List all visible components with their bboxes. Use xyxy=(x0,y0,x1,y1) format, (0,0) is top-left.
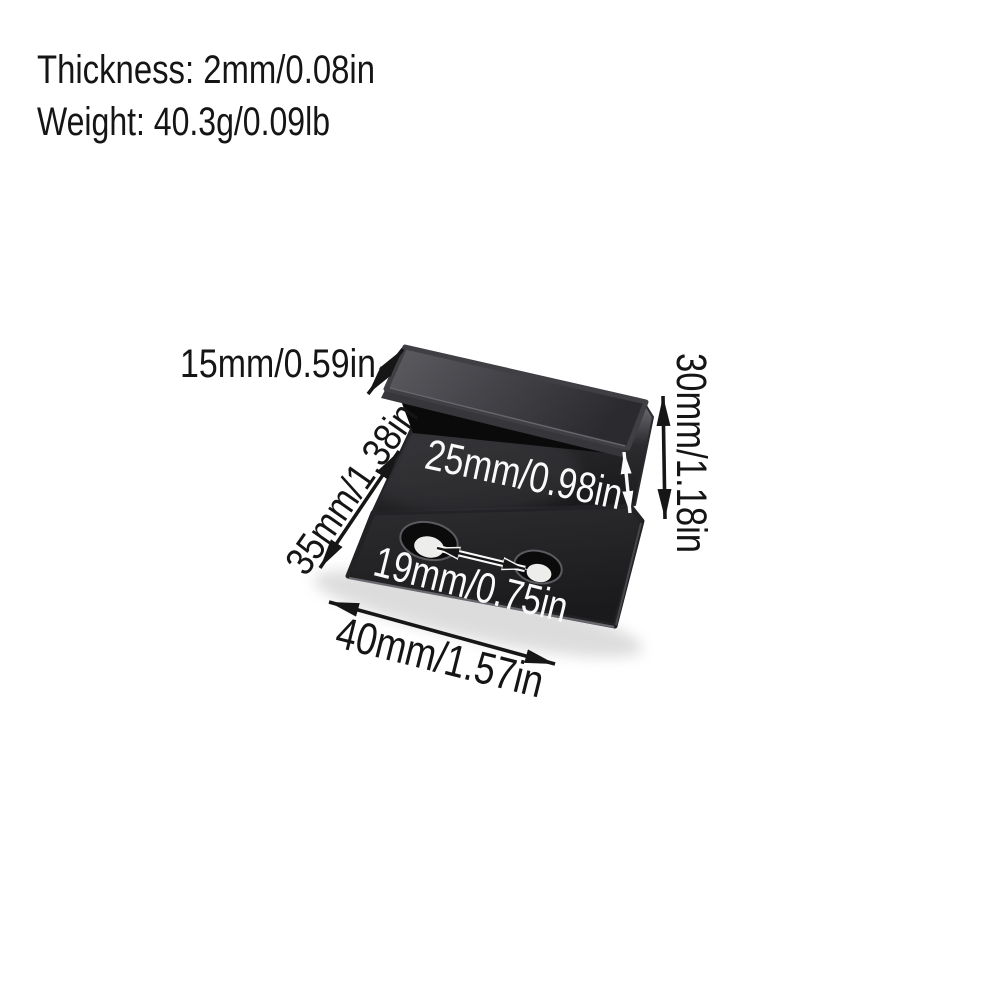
spec-thickness: Thickness: 2mm/0.08in xyxy=(37,48,375,92)
annotation-canvas: Thickness: 2mm/0.08in Weight: 40.3g/0.09… xyxy=(0,0,1000,1000)
product-dimension-diagram: Thickness: 2mm/0.08in Weight: 40.3g/0.09… xyxy=(0,0,1000,1000)
spec-weight: Weight: 40.3g/0.09lb xyxy=(37,100,330,144)
dim-label-overall-height: 30mm/1.18in xyxy=(667,353,715,553)
dim-arrow-overall-height xyxy=(663,396,665,519)
dim-label-flange-depth: 15mm/0.59in xyxy=(180,342,376,386)
